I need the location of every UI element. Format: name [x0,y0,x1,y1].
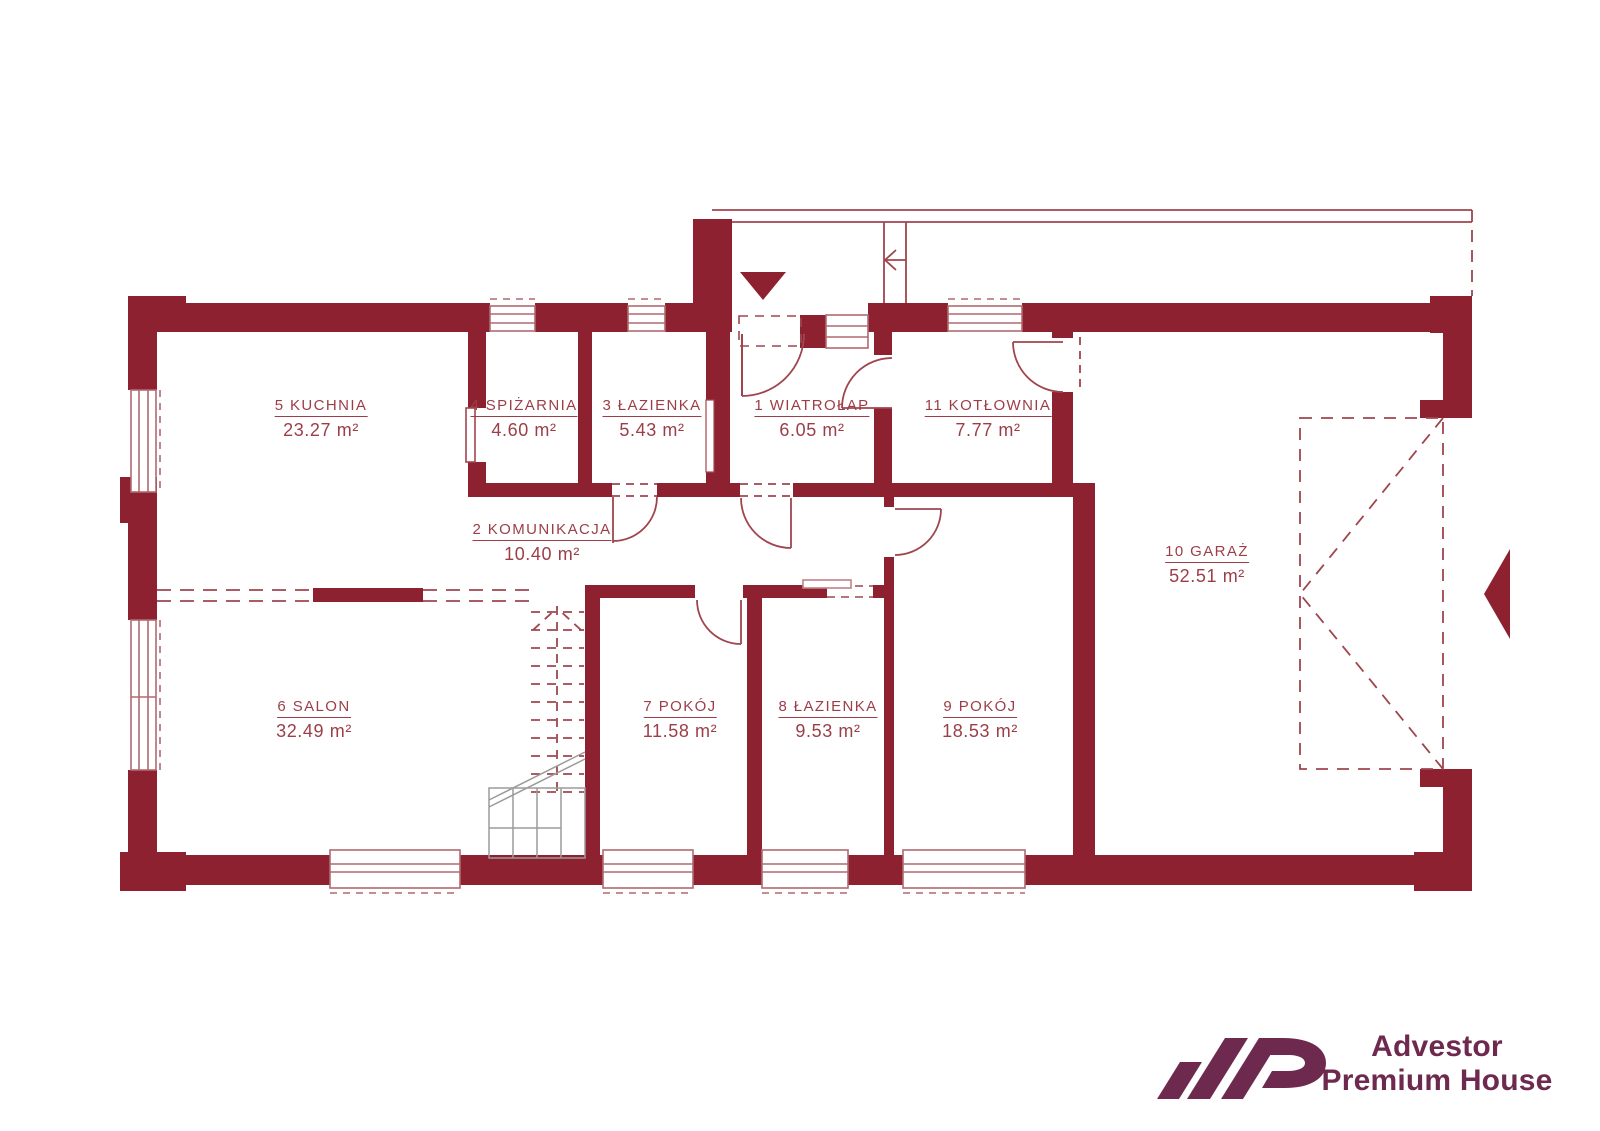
walls [120,219,1472,891]
room-label-spizarnia: 4 SPIŻARNIA4.60 m² [470,397,577,441]
wiatrolap-door [740,484,793,548]
brand-name: Advestor Premium House [1307,1030,1567,1098]
window-pokoj7 [603,850,693,893]
wall-niche [706,400,714,472]
brand-line-1: Advestor [1307,1030,1567,1064]
window-salon-bottom [330,850,460,893]
room-label-salon: 6 SALON32.49 m² [276,698,352,742]
pokoj7-door [697,600,741,644]
room-label-kuchnia: 5 KUCHNIA23.27 m² [275,397,368,441]
floorplan-drawing [0,0,1600,1131]
garage-door-symbol [1300,418,1510,769]
garaz-kotlownia-door [1013,337,1080,392]
window-kuchnia [131,390,160,492]
brand-line-2: Premium House [1307,1064,1567,1098]
window-pokoj9 [903,850,1025,893]
window-top-2 [628,299,665,331]
window-kotlownia [948,299,1022,331]
window-porch [826,315,868,348]
entrance-door-dashed [739,316,801,346]
room-label-komunikacja: 2 KOMUNIKACJA10.40 m² [472,521,611,565]
room-label-garaz: 10 GARAŻ52.51 m² [1165,543,1249,587]
room-label-wiatrolap: 1 WIATROŁAP6.05 m² [754,397,869,441]
entrance-arrow-icon [740,272,786,300]
entrance-door-arc [742,334,804,396]
pokoj9-door [895,509,941,555]
window-top-1 [490,299,535,331]
room-label-lazienka3: 3 ŁAZIENKA5.43 m² [602,397,701,441]
garage-arrow-icon [1484,549,1510,639]
entrance-symbols [739,272,804,396]
room-label-pokoj9: 9 POKÓJ18.53 m² [942,698,1018,742]
room-label-kotlownia: 11 KOTŁOWNIA7.77 m² [925,397,1052,441]
stairs-lower-flight [489,752,585,858]
window-salon-left [131,620,160,770]
room-label-pokoj7: 7 POKÓJ11.58 m² [643,698,718,742]
lazienka3-door [612,484,657,543]
window-lazienka8 [762,850,848,893]
room-label-lazienka8: 8 ŁAZIENKA9.53 m² [778,698,877,742]
staircase [489,606,585,858]
floorplan-page: 5 KUCHNIA23.27 m² 4 SPIŻARNIA4.60 m² 3 Ł… [0,0,1600,1131]
